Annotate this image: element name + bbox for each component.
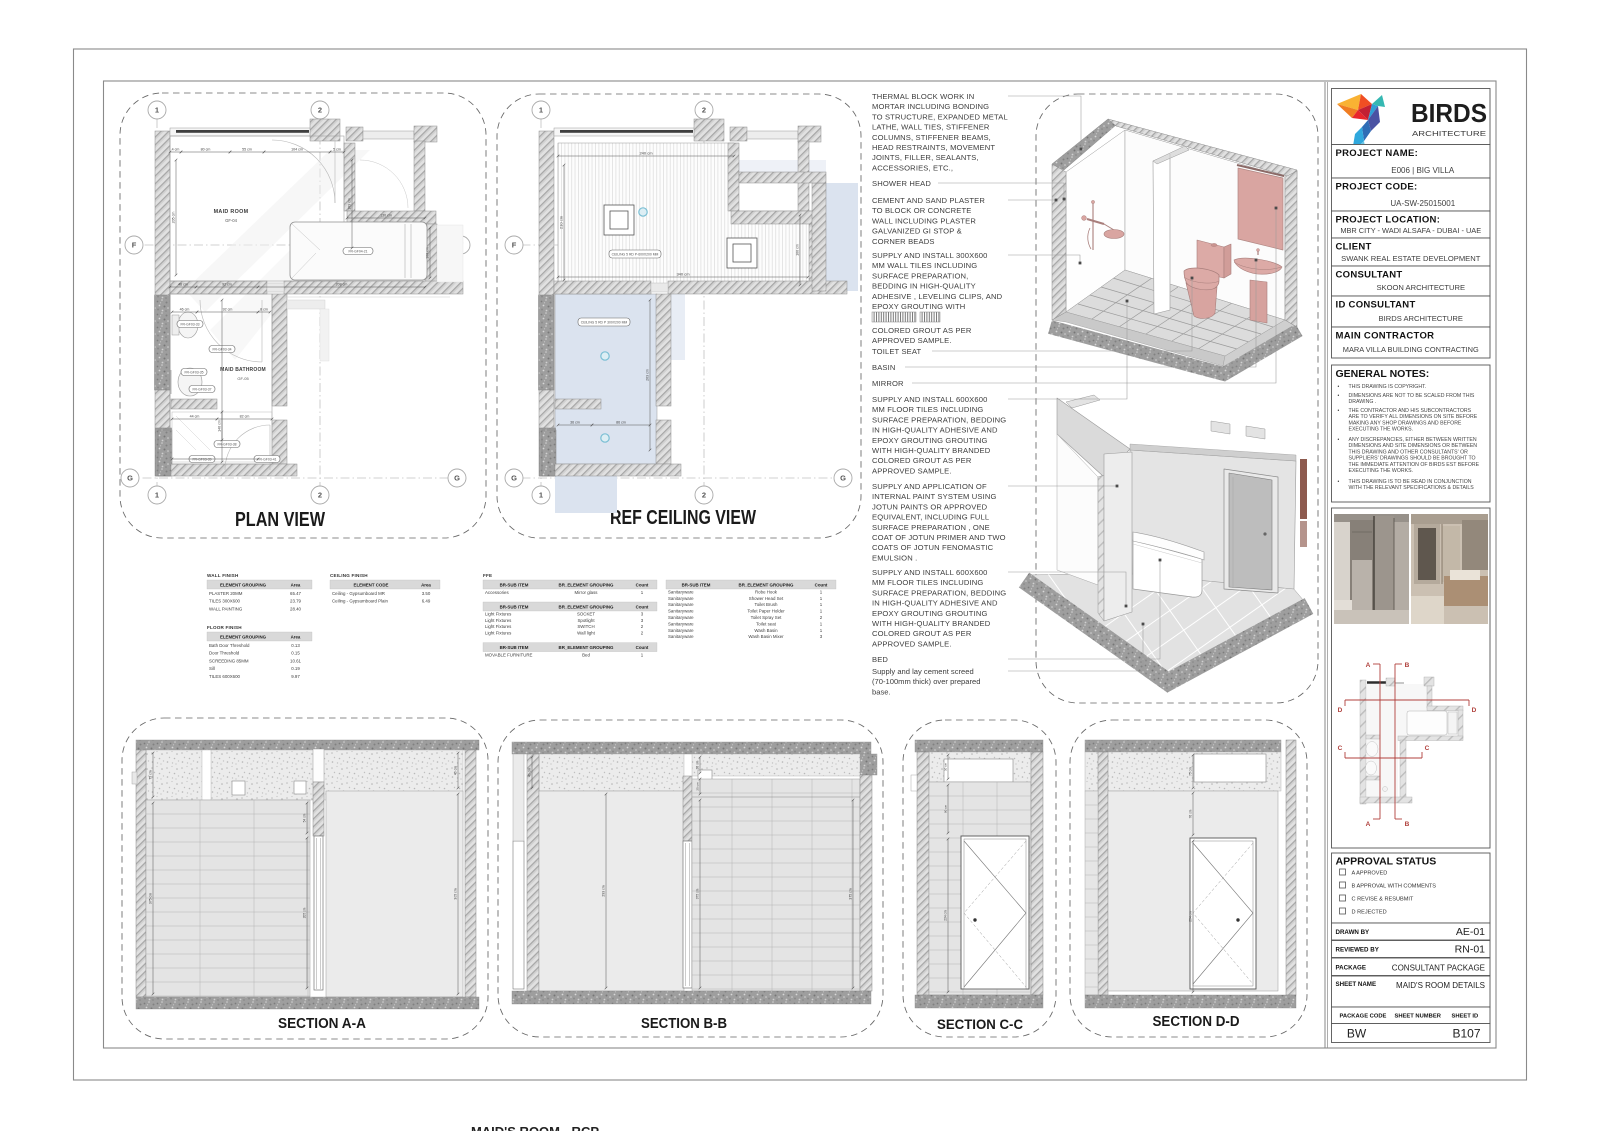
svg-text:PLASTER 20MM: PLASTER 20MM (209, 591, 243, 596)
svg-text:FR-GF03-41: FR-GF03-41 (257, 457, 276, 461)
svg-text:PACKAGE CODE: PACKAGE CODE (1340, 1014, 1387, 1020)
svg-text:2: 2 (318, 106, 322, 115)
svg-text:Sanitaryware: Sanitaryware (668, 602, 694, 607)
svg-text:APPROVAL STATUS: APPROVAL STATUS (1336, 856, 1437, 868)
svg-text:EQUIVALENT, INCLUDING FULL: EQUIVALENT, INCLUDING FULL (872, 513, 989, 522)
svg-text:EXECUTING THE WORKS.: EXECUTING THE WORKS. (1349, 427, 1413, 433)
svg-text:5 cm: 5 cm (333, 147, 341, 151)
svg-text:Light Fixtures: Light Fixtures (485, 611, 512, 616)
svg-text:Door Threshold: Door Threshold (209, 651, 240, 656)
svg-text:GENERAL NOTES:: GENERAL NOTES: (1336, 368, 1430, 380)
svg-text:65.47: 65.47 (290, 591, 302, 596)
svg-text:Sanitaryware: Sanitaryware (668, 628, 694, 633)
svg-text:25 cm: 25 cm (695, 782, 699, 791)
svg-text:MAID'S ROOM - RCP: MAID'S ROOM - RCP (471, 1124, 599, 1131)
svg-text:SUPPLY AND INSTALL 600X600: SUPPLY AND INSTALL 600X600 (872, 568, 987, 577)
svg-text:Count: Count (636, 583, 649, 588)
svg-text:DIMENSIONS AND SITE DIMENSIONS: DIMENSIONS AND SITE DIMENSIONS OR BETWEE… (1349, 443, 1478, 449)
svg-text:3.50: 3.50 (422, 591, 431, 596)
svg-text:•: • (1338, 408, 1340, 414)
svg-text:40 cm: 40 cm (453, 766, 457, 775)
svg-text:AE-01: AE-01 (1456, 926, 1485, 938)
svg-text:203 cm: 203 cm (645, 369, 649, 381)
svg-text:SUPPLY AND INSTALL 300X600: SUPPLY AND INSTALL 300X600 (872, 251, 987, 260)
svg-text:44 cm: 44 cm (190, 414, 200, 418)
svg-text:46 cm: 46 cm (178, 282, 188, 286)
svg-text:Count: Count (815, 583, 828, 588)
svg-text:DIMENSIONS ARE NOT TO BE SCALE: DIMENSIONS ARE NOT TO BE SCALED FROM THI… (1349, 393, 1475, 399)
svg-text:BR-SUB ITEM: BR-SUB ITEM (682, 583, 711, 588)
svg-text:Sanitaryware: Sanitaryware (668, 621, 694, 626)
svg-text:76 cm: 76 cm (1188, 809, 1192, 818)
svg-text:ACCESSORIES, ETC.,: ACCESSORIES, ETC., (872, 163, 953, 172)
svg-text:ID CONSULTANT: ID CONSULTANT (1336, 300, 1416, 311)
svg-text:FR-GF03-33: FR-GF03-33 (180, 322, 199, 326)
svg-text:F: F (512, 241, 517, 250)
svg-text:•: • (1338, 479, 1340, 485)
svg-text:FFE: FFE (483, 573, 492, 578)
svg-text:Bed: Bed (582, 653, 590, 658)
svg-text:Toilet Brush: Toilet Brush (755, 602, 778, 607)
svg-text:EXECUTING THE WORKS.: EXECUTING THE WORKS. (1349, 468, 1413, 474)
svg-text:C: C (1338, 745, 1343, 752)
svg-text:305 cm: 305 cm (453, 888, 457, 899)
svg-text:MIRROR: MIRROR (872, 379, 904, 388)
svg-text:FR-GF04-21: FR-GF04-21 (348, 249, 367, 253)
svg-text:SUPPLIERS' DRAWINGS SHOULD BE: SUPPLIERS' DRAWINGS SHOULD BE BROUGHT TO (1349, 456, 1476, 462)
svg-text:ARCHITECTURE: ARCHITECTURE (1412, 129, 1486, 138)
svg-text:•: • (1338, 437, 1340, 443)
svg-text:FR-GF03-38: FR-GF03-38 (217, 442, 236, 446)
svg-text:82 cm: 82 cm (240, 414, 250, 418)
svg-text:COATS OF JOTUN FENOMASTIC: COATS OF JOTUN FENOMASTIC (872, 543, 994, 552)
svg-text:IN HIGH-QUALITY ADHESIVE AND: IN HIGH-QUALITY ADHESIVE AND (872, 599, 998, 608)
svg-text:SHEET ID: SHEET ID (1452, 1014, 1479, 1020)
svg-text:80 cm: 80 cm (201, 147, 211, 151)
svg-text:C REVISE & RESUBMIT: C REVISE & RESUBMIT (1352, 897, 1414, 903)
svg-text:103 cm: 103 cm (347, 198, 351, 210)
svg-text:C: C (1425, 745, 1430, 752)
svg-text:REF CEILING VIEW: REF CEILING VIEW (610, 507, 756, 529)
svg-text:Area: Area (291, 635, 301, 640)
svg-text:RN-01: RN-01 (1455, 944, 1486, 956)
svg-text:THERMAL BLOCK WORK IN: THERMAL BLOCK WORK IN (872, 92, 974, 101)
svg-text:MARA VILLA BUILDING CONTRACTIN: MARA VILLA BUILDING CONTRACTING (1343, 345, 1479, 354)
svg-text:CONSULTANT: CONSULTANT (1336, 270, 1403, 281)
svg-text:ELEMENT GROUPING: ELEMENT GROUPING (220, 635, 267, 640)
svg-text:COLUMNS, STIFFENER BEAMS,: COLUMNS, STIFFENER BEAMS, (872, 133, 991, 142)
svg-text:EPOXY GROUTING GROUTING: EPOXY GROUTING GROUTING (872, 436, 988, 445)
svg-text:EMULSION .: EMULSION . (872, 553, 917, 562)
svg-text:100 cm: 100 cm (425, 247, 429, 259)
svg-text:BR-SUB ITEM: BR-SUB ITEM (500, 583, 529, 588)
svg-text:MBR CITY - WADI ALSAFA - DUBAI: MBR CITY - WADI ALSAFA - DUBAI - UAE (1340, 226, 1481, 235)
svg-text:30 cm: 30 cm (695, 760, 699, 769)
svg-text:JOTUN PAINTS OR APPROVED: JOTUN PAINTS OR APPROVED (872, 502, 988, 511)
svg-text:•: • (1338, 393, 1340, 399)
svg-text:•: • (1338, 384, 1340, 390)
svg-text:THIS DRAWING AND OTHER CONSULT: THIS DRAWING AND OTHER CONSULTANTS' OR (1349, 449, 1469, 455)
svg-text:Wall light: Wall light (577, 631, 595, 636)
svg-text:86 cm: 86 cm (616, 420, 626, 424)
svg-text:A: A (1366, 662, 1371, 669)
svg-text:54 cm: 54 cm (302, 813, 306, 822)
svg-text:ARE TO VERIFY ALL DIMENSIONS O: ARE TO VERIFY ALL DIMENSIONS ON SITE BEF… (1349, 414, 1478, 420)
svg-text:293 cm: 293 cm (601, 885, 605, 896)
svg-text:SECTION B-B: SECTION B-B (641, 1016, 727, 1032)
svg-text:340 cm: 340 cm (676, 271, 690, 276)
svg-text:CONSULTANT PACKAGE: CONSULTANT PACKAGE (1392, 963, 1485, 972)
svg-text:MAID'S ROOM DETAILS: MAID'S ROOM DETAILS (1396, 981, 1485, 990)
svg-text:D: D (1472, 707, 1477, 714)
svg-text:208 cm: 208 cm (336, 282, 348, 286)
svg-text:BR-SUB ITEM: BR-SUB ITEM (500, 605, 529, 610)
svg-text:375 cm: 375 cm (695, 888, 699, 899)
svg-text:CEILING FINISH: CEILING FINISH (330, 573, 368, 578)
svg-text:ADHESIVE , LEVELING CLIPS, AND: ADHESIVE , LEVELING CLIPS, AND (872, 292, 1003, 301)
svg-text:IN HIGH-QUALITY ADHESIVE AND: IN HIGH-QUALITY ADHESIVE AND (872, 426, 998, 435)
svg-text:28.40: 28.40 (290, 606, 302, 611)
svg-text:210 cm: 210 cm (558, 215, 563, 229)
svg-text:SECTION A-A: SECTION A-A (278, 1016, 366, 1032)
svg-text:SURFACE PREPARATION , ONE: SURFACE PREPARATION , ONE (872, 523, 990, 532)
svg-text:46 cm: 46 cm (180, 307, 190, 311)
svg-text:6.49: 6.49 (422, 599, 431, 604)
svg-text:E006 | BIG VILLA: E006 | BIG VILLA (1391, 166, 1455, 175)
svg-text:SURFACE PREPARATION, BEDDING: SURFACE PREPARATION, BEDDING (872, 588, 1006, 597)
svg-text:BED: BED (872, 655, 888, 664)
svg-text:THE CONTRACTOR AND HIS SUBCONT: THE CONTRACTOR AND HIS SUBCONTRACTORS (1349, 408, 1472, 414)
svg-text:JOINTS, FILLER, SEALANTS,: JOINTS, FILLER, SEALANTS, (872, 153, 979, 162)
svg-text:100 cm: 100 cm (795, 244, 799, 256)
svg-text:234 cm: 234 cm (1188, 911, 1192, 922)
svg-text:234 cm: 234 cm (943, 910, 947, 921)
svg-text:WALL PAINTING: WALL PAINTING (209, 606, 243, 611)
svg-text:40 cm: 40 cm (527, 768, 531, 777)
svg-text:30 cm: 30 cm (943, 762, 947, 771)
svg-text:Count: Count (636, 605, 649, 610)
svg-text:Count: Count (636, 645, 649, 650)
svg-text:Sanitaryware: Sanitaryware (668, 634, 694, 639)
svg-text:DRAWN BY: DRAWN BY (1336, 929, 1371, 936)
svg-text:92 cm: 92 cm (222, 282, 232, 286)
svg-text:2: 2 (702, 491, 706, 500)
svg-text:MM FLOOR TILES INCLUDING: MM FLOOR TILES INCLUDING (872, 578, 983, 587)
svg-text:Ceiling - Gypsumboard Plain: Ceiling - Gypsumboard Plain (332, 599, 388, 604)
svg-text:205 cm: 205 cm (302, 907, 306, 918)
svg-text:90 cm: 90 cm (943, 804, 947, 813)
svg-text:PROJECT CODE:: PROJECT CODE: (1336, 182, 1418, 193)
svg-text:B: B (1405, 662, 1410, 669)
svg-text:Accessories: Accessories (485, 590, 509, 595)
svg-text:ELEMENT GROUPING: ELEMENT GROUPING (220, 583, 267, 588)
svg-text:EPOXY GROUTING GROUTING: EPOXY GROUTING GROUTING (872, 609, 988, 618)
svg-text:D: D (1338, 707, 1343, 714)
svg-text:SECTION D-D: SECTION D-D (1153, 1014, 1240, 1030)
svg-text:A: A (1366, 821, 1371, 828)
svg-text:0.15: 0.15 (291, 651, 300, 656)
svg-text:1: 1 (539, 491, 543, 500)
svg-text:BIRDS: BIRDS (1411, 98, 1487, 128)
svg-text:CEMENT AND SAND PLASTER: CEMENT AND SAND PLASTER (872, 196, 985, 205)
svg-text:Light Fixtures: Light Fixtures (485, 631, 512, 636)
svg-text:ELEMENT CODE: ELEMENT CODE (354, 583, 389, 588)
svg-text:Shower Head Set: Shower Head Set (749, 596, 784, 601)
svg-text:SUPPLY AND APPLICATION OF: SUPPLY AND APPLICATION OF (872, 482, 987, 491)
svg-text:Wash Basin: Wash Basin (754, 628, 778, 633)
svg-text:COLORED GROUT AS PER: COLORED GROUT AS PER (872, 456, 972, 465)
svg-text:FR-GF03-39: FR-GF03-39 (192, 457, 211, 461)
svg-text:Light Fixtures: Light Fixtures (485, 624, 512, 629)
svg-text:Sill: Sill (209, 666, 215, 671)
svg-text:TO BLOCK OR CONCRETE: TO BLOCK OR CONCRETE (872, 206, 971, 215)
svg-text:PROJECT NAME:: PROJECT NAME: (1336, 148, 1419, 159)
svg-text:Sanitaryware: Sanitaryware (668, 609, 694, 614)
svg-text:1: 1 (539, 106, 543, 115)
svg-text:base.: base. (872, 687, 891, 696)
svg-text:PACKAGE: PACKAGE (1336, 964, 1366, 971)
svg-text:SWANK REAL ESTATE DEVELOPMENT: SWANK REAL ESTATE DEVELOPMENT (1341, 254, 1481, 263)
svg-text:10.61: 10.61 (290, 658, 302, 663)
svg-text:Robe Hook: Robe Hook (755, 589, 778, 594)
svg-text:SHEET NUMBER: SHEET NUMBER (1395, 1014, 1442, 1020)
svg-text:MAIN CONTRACTOR: MAIN CONTRACTOR (1336, 331, 1435, 342)
svg-text:23.79: 23.79 (290, 599, 302, 604)
svg-text:SWITCH: SWITCH (577, 624, 594, 629)
svg-text:FR-GF03-35: FR-GF03-35 (184, 370, 203, 374)
svg-text:INTERNAL PAINT SYSTEM USING: INTERNAL PAINT SYSTEM USING (872, 492, 997, 501)
svg-text:BR_ELEMENT GROUPING: BR_ELEMENT GROUPING (739, 583, 794, 588)
svg-text:G: G (840, 474, 846, 483)
svg-text:55 cm: 55 cm (242, 147, 252, 151)
svg-text:BASIN: BASIN (872, 363, 896, 372)
svg-text:Supply and lay cement screed: Supply and lay cement screed (872, 667, 974, 676)
svg-text:375 cm: 375 cm (148, 893, 152, 904)
svg-text:BR-SUB ITEM: BR-SUB ITEM (500, 645, 529, 650)
svg-text:SUPPLY AND INSTALL 600X600: SUPPLY AND INSTALL 600X600 (872, 395, 987, 404)
svg-text:Area: Area (421, 583, 431, 588)
svg-text:CEILING 5 RD P-600X200 MM: CEILING 5 RD P-600X200 MM (612, 252, 659, 256)
svg-text:GALVANIZED GI STOP &: GALVANIZED GI STOP & (872, 227, 962, 236)
svg-text:Toilet Paper Holder: Toilet Paper Holder (747, 609, 785, 614)
svg-text:MAID BATHROOM: MAID BATHROOM (220, 367, 266, 373)
svg-text:CLIENT: CLIENT (1336, 242, 1372, 253)
svg-text:BW: BW (1347, 1027, 1367, 1041)
svg-text:Spotlight: Spotlight (577, 618, 595, 623)
svg-text:B107: B107 (1452, 1027, 1480, 1041)
svg-text:4 cm: 4 cm (172, 147, 180, 151)
svg-text:Sanitaryware: Sanitaryware (668, 596, 694, 601)
svg-text:COLORED GROUT AS PER: COLORED GROUT AS PER (872, 629, 972, 638)
svg-text:SHOWER HEAD: SHOWER HEAD (872, 179, 931, 188)
svg-text:36 cm: 36 cm (570, 420, 580, 424)
svg-text:COAT OF JOTUN PRIMER AND TWO: COAT OF JOTUN PRIMER AND TWO (872, 533, 1006, 542)
svg-text:BR_ELEMENT GROUPING: BR_ELEMENT GROUPING (559, 645, 614, 650)
svg-text:205 cm: 205 cm (171, 212, 175, 224)
svg-text:0.19: 0.19 (291, 666, 300, 671)
svg-text:MM WALL TILES INCLUDING: MM WALL TILES INCLUDING (872, 261, 977, 270)
svg-text:(70-100mm thick) over prepared: (70-100mm thick) over prepared (872, 677, 980, 686)
svg-text:G: G (454, 474, 460, 483)
svg-text:104 cm: 104 cm (291, 147, 303, 151)
svg-text:FR-GF03-37: FR-GF03-37 (192, 387, 211, 391)
svg-text:2: 2 (318, 491, 322, 500)
svg-text:WITH HIGH-QUALITY BRANDED: WITH HIGH-QUALITY BRANDED (872, 446, 991, 455)
svg-text:WITH HIGH-QUALITY BRANDED: WITH HIGH-QUALITY BRANDED (872, 619, 991, 628)
svg-text:APPROVED SAMPLE.: APPROVED SAMPLE. (872, 639, 952, 648)
svg-text:PLAN VIEW: PLAN VIEW (235, 509, 325, 531)
svg-text:F: F (132, 241, 137, 250)
svg-text:SURFACE PREPARATION, BEDDING: SURFACE PREPARATION, BEDDING (872, 415, 1006, 424)
svg-text:Bath Door Threshold: Bath Door Threshold (209, 643, 250, 648)
svg-text:Mirror glass: Mirror glass (575, 590, 599, 595)
svg-text:WITH THE RELEVANT SPECIFICATIO: WITH THE RELEVANT SPECIFICATIONS & DETAI… (1349, 485, 1475, 491)
svg-text:WALL FINISH: WALL FINISH (207, 573, 239, 578)
svg-text:APPROVED SAMPLE.: APPROVED SAMPLE. (872, 466, 952, 475)
svg-text:1: 1 (155, 106, 159, 115)
svg-text:D REJECTED: D REJECTED (1352, 910, 1387, 916)
svg-text:BR_ELEMENT GROUPING: BR_ELEMENT GROUPING (559, 583, 614, 588)
svg-text:THE IMMEDIATE ATTENTION OF BIR: THE IMMEDIATE ATTENTION OF BIRDS EST BEF… (1349, 462, 1480, 468)
svg-text:APPROVED SAMPLE.: APPROVED SAMPLE. (872, 336, 952, 345)
svg-text:B: B (1405, 821, 1410, 828)
svg-text:SKOON ARCHITECTURE: SKOON ARCHITECTURE (1376, 283, 1465, 292)
svg-text:TILES 600X600: TILES 600X600 (209, 674, 241, 679)
svg-text:BR_ELEMENT GROUPING: BR_ELEMENT GROUPING (559, 605, 614, 610)
svg-text:COLORED GROUT AS PER: COLORED GROUT AS PER (872, 326, 972, 335)
svg-text:75 cm: 75 cm (148, 770, 152, 779)
svg-text:A APPROVED: A APPROVED (1352, 871, 1388, 877)
svg-text:Ceiling - Gypsumboard MR: Ceiling - Gypsumboard MR (332, 591, 385, 596)
svg-text:SOCKET: SOCKET (577, 611, 595, 616)
svg-text:Wash Basin Mixer: Wash Basin Mixer (748, 634, 784, 639)
svg-text:HEAD RESTRAINTS, MOVEMENT: HEAD RESTRAINTS, MOVEMENT (872, 143, 995, 152)
svg-text:BIRDS ARCHITECTURE: BIRDS ARCHITECTURE (1379, 314, 1463, 323)
svg-text:PROJECT LOCATION:: PROJECT LOCATION: (1336, 215, 1441, 226)
svg-text:DRAWING .: DRAWING . (1349, 399, 1377, 405)
svg-text:Sanitaryware: Sanitaryware (668, 589, 694, 594)
svg-text:THIS DRAWING IS TO BE READ IN: THIS DRAWING IS TO BE READ IN CONJUNCTIO… (1349, 479, 1472, 485)
svg-text:SECTION C-C: SECTION C-C (937, 1017, 1023, 1032)
svg-text:THIS DRAWING IS COPYRIGHT.: THIS DRAWING IS COPYRIGHT. (1349, 384, 1427, 390)
svg-text:9.97: 9.97 (291, 674, 300, 679)
svg-text:MAKING ANY SHOP DRAWINGS AND B: MAKING ANY SHOP DRAWINGS AND BEFORE (1349, 420, 1462, 426)
svg-text:SURFACE PREPARATION,: SURFACE PREPARATION, (872, 271, 968, 280)
svg-text:WALL INCLUDING PLASTER: WALL INCLUDING PLASTER (872, 216, 976, 225)
svg-text:2: 2 (702, 106, 706, 115)
svg-text:LATHE, WALL TIES, STIFFENER: LATHE, WALL TIES, STIFFENER (872, 123, 990, 132)
svg-text:TO STRUCTURE, EXPANDED METAL: TO STRUCTURE, EXPANDED METAL (872, 112, 1008, 121)
svg-text:0.13: 0.13 (291, 643, 300, 648)
svg-text:Area: Area (291, 583, 301, 588)
svg-text:Light Fixtures: Light Fixtures (485, 618, 512, 623)
svg-text:Sanitaryware: Sanitaryware (668, 615, 694, 620)
svg-text:1: 1 (155, 491, 159, 500)
svg-text:140 cm: 140 cm (217, 420, 221, 432)
svg-text:Toilet Spray Set: Toilet Spray Set (751, 615, 783, 620)
svg-text:MAID ROOM: MAID ROOM (214, 209, 249, 215)
svg-text:G: G (127, 474, 133, 483)
svg-text:B APPROVAL WITH COMMENTS: B APPROVAL WITH COMMENTS (1352, 884, 1437, 890)
svg-text:FLOOR FINISH: FLOOR FINISH (207, 625, 242, 630)
svg-text:130 cm: 130 cm (380, 213, 392, 217)
svg-text:240 cm: 240 cm (639, 150, 653, 155)
svg-text:BEDDING IN HIGH-QUALITY: BEDDING IN HIGH-QUALITY (872, 282, 976, 291)
svg-text:GF-04: GF-04 (225, 218, 238, 223)
svg-text:GF-05: GF-05 (237, 376, 249, 381)
svg-text:REVIEWED BY: REVIEWED BY (1336, 947, 1380, 954)
svg-text:Toilet seat: Toilet seat (756, 621, 777, 626)
svg-text:92 cm: 92 cm (223, 307, 233, 311)
svg-text:MORTAR INCLUDING BONDING: MORTAR INCLUDING BONDING (872, 102, 989, 111)
svg-text:MM FLOOR TILES INCLUDING: MM FLOOR TILES INCLUDING (872, 405, 983, 414)
svg-text:SCREEDING 85MM: SCREEDING 85MM (209, 658, 249, 663)
svg-text:TOILET SEAT: TOILET SEAT (872, 347, 922, 356)
svg-text:CEILING 5 RD P 300X200 MM: CEILING 5 RD P 300X200 MM (581, 320, 628, 324)
svg-text:EPOXY GROUTING WITH: EPOXY GROUTING WITH (872, 302, 965, 311)
svg-text:MOVABLE FURNITURE: MOVABLE FURNITURE (485, 653, 533, 658)
svg-text:UA-SW-25015001: UA-SW-25015001 (1390, 199, 1455, 208)
svg-text:CORNER BEADS: CORNER BEADS (872, 237, 935, 246)
svg-text:G: G (511, 474, 517, 483)
svg-text:SHEET NAME: SHEET NAME (1336, 981, 1377, 988)
svg-text:75 cm: 75 cm (1188, 767, 1192, 776)
svg-text:375 cm: 375 cm (848, 888, 852, 899)
svg-text:8 cm: 8 cm (260, 307, 268, 311)
svg-text:TILES 300X600: TILES 300X600 (209, 599, 241, 604)
svg-text:ANY DISCREPANCIES, EITHER BETW: ANY DISCREPANCIES, EITHER BETWEEN WRITTE… (1349, 437, 1477, 443)
